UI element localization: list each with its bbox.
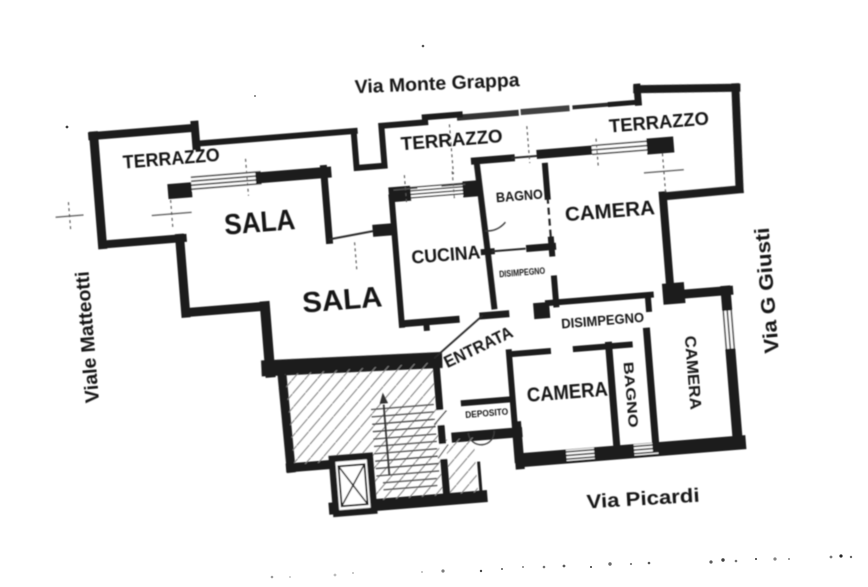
svg-text:SALA: SALA <box>301 281 383 319</box>
svg-text:SALA: SALA <box>223 204 296 242</box>
